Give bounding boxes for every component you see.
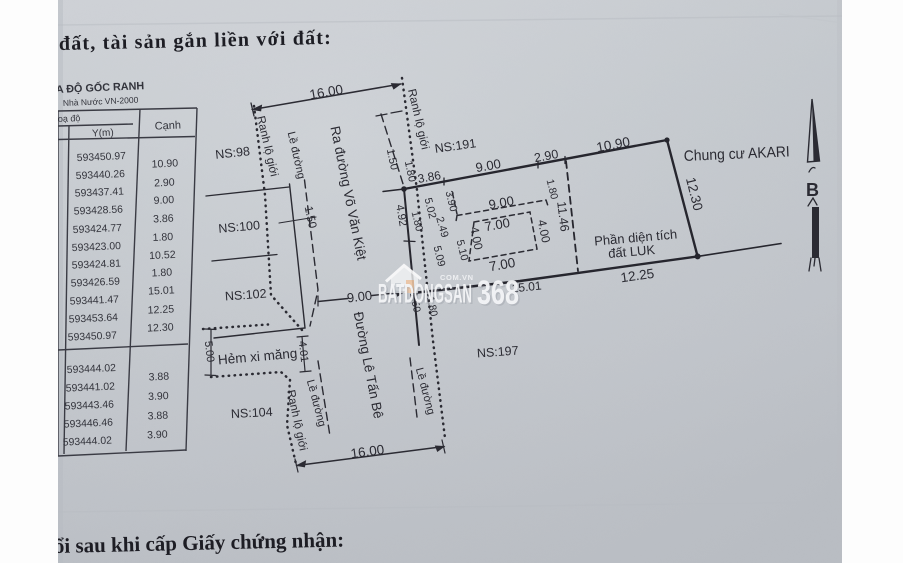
svg-text:BATDONGSAN: BATDONGSAN — [378, 279, 472, 309]
svg-text:9.00: 9.00 — [153, 194, 174, 207]
svg-text:593424.81: 593424.81 — [72, 258, 122, 271]
svg-text:1.80: 1.80 — [152, 231, 173, 244]
svg-text:593450.97: 593450.97 — [68, 330, 118, 343]
svg-text:3.90: 3.90 — [147, 429, 168, 442]
svg-text:593444.02: 593444.02 — [67, 363, 117, 376]
svg-text:2.90: 2.90 — [154, 177, 175, 190]
svg-text:593440.26: 593440.26 — [76, 169, 126, 182]
svg-text:593441.47: 593441.47 — [70, 294, 120, 307]
svg-text:593441.02: 593441.02 — [66, 381, 116, 394]
svg-text:1.80: 1.80 — [151, 267, 172, 280]
svg-text:12.30: 12.30 — [147, 321, 174, 334]
svg-text:B: B — [806, 180, 819, 200]
svg-text:593424.77: 593424.77 — [73, 223, 123, 236]
svg-text:593428.56: 593428.56 — [74, 204, 124, 217]
svg-text:3.86: 3.86 — [153, 213, 174, 226]
svg-text:593443.46: 593443.46 — [65, 399, 115, 412]
svg-text:3.90: 3.90 — [148, 390, 169, 403]
svg-text:593444.02: 593444.02 — [63, 435, 113, 448]
svg-text:593426.59: 593426.59 — [71, 276, 121, 289]
svg-text:oạ độ: oạ độ — [58, 113, 81, 124]
svg-text:593437.41: 593437.41 — [75, 186, 125, 199]
svg-text:Y(m): Y(m) — [92, 128, 114, 140]
svg-text:3.88: 3.88 — [147, 410, 168, 423]
svg-text:368: 368 — [477, 274, 519, 312]
svg-text:NS:102: NS:102 — [224, 287, 267, 304]
svg-text:593446.46: 593446.46 — [64, 417, 114, 430]
svg-text:3.88: 3.88 — [148, 371, 169, 384]
svg-text:593423.00: 593423.00 — [72, 241, 122, 254]
svg-text:NS:197: NS:197 — [476, 344, 519, 361]
svg-text:10.90: 10.90 — [151, 157, 178, 170]
svg-text:10.52: 10.52 — [149, 249, 176, 262]
svg-text:9.00: 9.00 — [346, 288, 373, 306]
svg-text:593450.97: 593450.97 — [77, 151, 127, 164]
svg-text:NS:104: NS:104 — [231, 405, 273, 421]
svg-text:Cạnh: Cạnh — [154, 119, 181, 132]
svg-text:12.25: 12.25 — [147, 303, 174, 316]
svg-text:15.01: 15.01 — [148, 284, 175, 297]
svg-text:593453.64: 593453.64 — [69, 312, 119, 325]
